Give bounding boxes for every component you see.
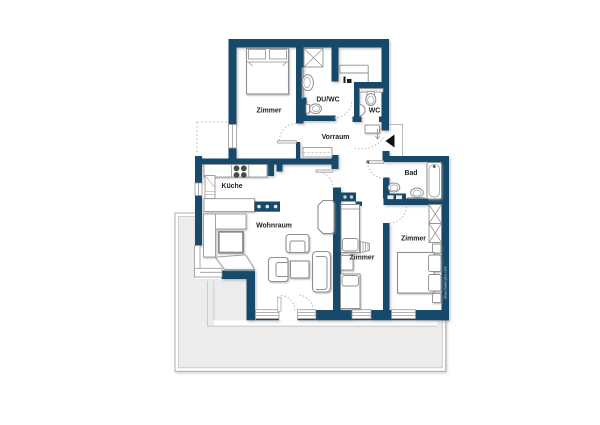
svg-text:Zimmer: Zimmer — [257, 108, 282, 115]
svg-text:Wohnraum: Wohnraum — [256, 223, 292, 230]
svg-text:www.chaletsplus.com: www.chaletsplus.com — [444, 266, 448, 299]
svg-text:Bad: Bad — [404, 170, 417, 177]
svg-text:Zimmer: Zimmer — [401, 236, 426, 243]
svg-text:WC: WC — [369, 108, 381, 115]
svg-text:Zimmer: Zimmer — [350, 255, 375, 262]
svg-text:Küche: Küche — [221, 183, 242, 190]
svg-text:Vorraum: Vorraum — [322, 134, 350, 141]
svg-text:DU/WC: DU/WC — [316, 97, 339, 104]
